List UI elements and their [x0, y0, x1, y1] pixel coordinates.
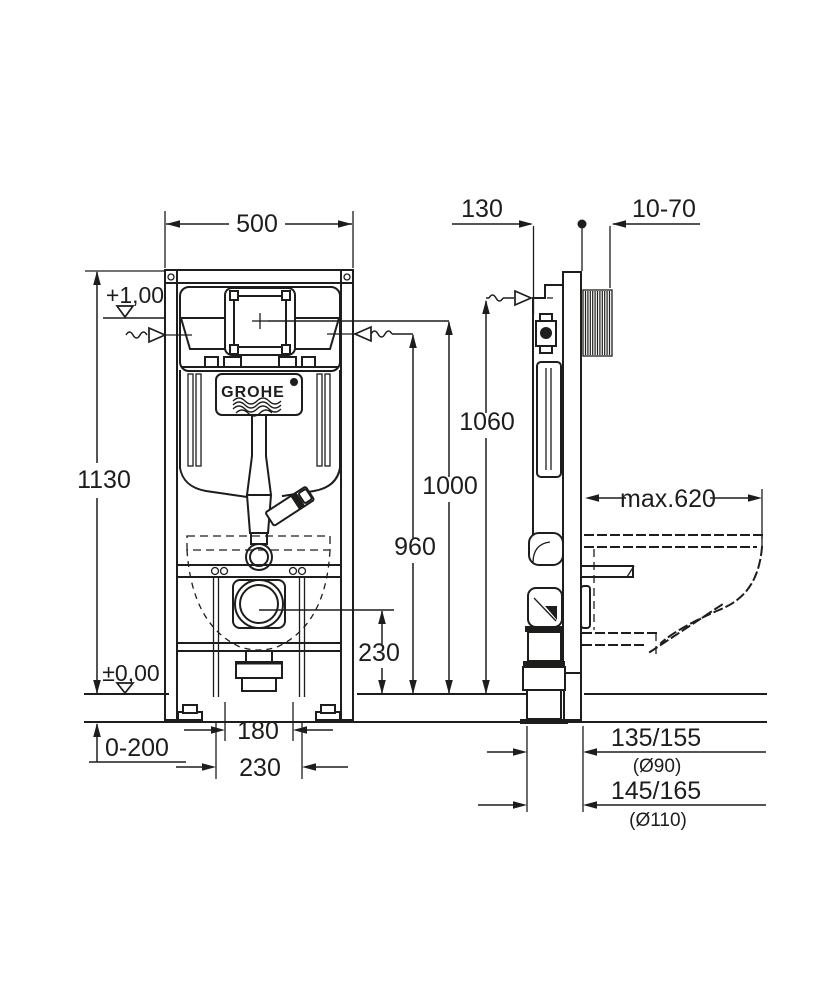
- level-triangle-icon: [117, 306, 133, 317]
- level-marker-zero: ±0,00: [102, 660, 159, 693]
- bolt-icon: [221, 568, 228, 575]
- bolt-icon: [290, 568, 297, 575]
- inlet-branch-pipe: [265, 486, 314, 526]
- dim-supply-height: 960: [394, 334, 436, 694]
- dim-label-130: 130: [461, 195, 503, 223]
- wavy-line-icon: [126, 332, 147, 338]
- wall-bracket-hatched: [583, 290, 612, 356]
- open-arrow-icon: [515, 291, 531, 305]
- level-marker-plus100: +1,00: [103, 282, 164, 318]
- dim-wall-bracket-range: 10-70: [610, 195, 700, 288]
- technical-drawing-page: GROHE: [0, 0, 834, 1000]
- level-triangle-icon: [117, 683, 133, 693]
- dim-bowl-depth: max.620: [585, 485, 762, 539]
- grohe-logo-plate: GROHE: [216, 374, 302, 416]
- flush-valve-assembly: [246, 416, 314, 570]
- dim-label-145-165: 145/165: [611, 777, 701, 805]
- dim-label-960: 960: [394, 533, 436, 561]
- dim-frame-width: 500: [165, 210, 353, 268]
- dim-label-max620: max.620: [620, 485, 716, 513]
- level-label-zero: ±0,00: [102, 660, 159, 686]
- reference-dot-icon: [578, 220, 587, 229]
- dim-label-10-70: 10-70: [632, 195, 696, 223]
- level-label-plus100: +1,00: [106, 282, 164, 308]
- bolt-icon: [299, 568, 306, 575]
- dim-drain-offset-110: 145/165 (Ø110): [478, 777, 766, 831]
- dim-label-1130: 1130: [77, 466, 131, 494]
- dim-foot-adjustment: 0-200: [89, 723, 186, 762]
- outlet-sleeve: [236, 651, 282, 691]
- dim-label-180: 180: [237, 717, 279, 745]
- dim-label-1000: 1000: [422, 472, 478, 500]
- dim-label-230-height: 230: [358, 639, 400, 667]
- dim-label-dia90: (Ø90): [633, 756, 682, 777]
- bolt-icon: [212, 568, 219, 575]
- dim-label-500: 500: [236, 210, 278, 238]
- cistern-side: [537, 362, 561, 477]
- open-arrow-icon: [355, 327, 371, 341]
- dim-bolt-spacing-180: 180: [184, 702, 333, 745]
- dim-label-135-155: 135/155: [611, 724, 701, 752]
- drain-socket: [233, 580, 285, 628]
- dim-label-0-200: 0-200: [105, 734, 169, 762]
- grohe-logo-text: GROHE: [221, 384, 285, 401]
- dim-label-dia110: (Ø110): [629, 810, 687, 831]
- open-arrow-icon: [149, 328, 165, 342]
- dim-label-230-spacing: 230: [239, 754, 281, 782]
- registered-mark-icon: [290, 378, 298, 386]
- side-fixing-bracket: [536, 314, 556, 353]
- bowl-outline-dashed-side: [583, 535, 762, 654]
- grohe-installation-diagram: GROHE: [0, 0, 834, 1000]
- corner-screw-icon: [168, 274, 174, 280]
- wavy-line-icon: [489, 295, 503, 301]
- side-pipework: [520, 533, 634, 724]
- dim-label-1060: 1060: [459, 408, 515, 436]
- corner-screw-icon: [344, 274, 350, 280]
- wavy-line-icon: [371, 331, 392, 337]
